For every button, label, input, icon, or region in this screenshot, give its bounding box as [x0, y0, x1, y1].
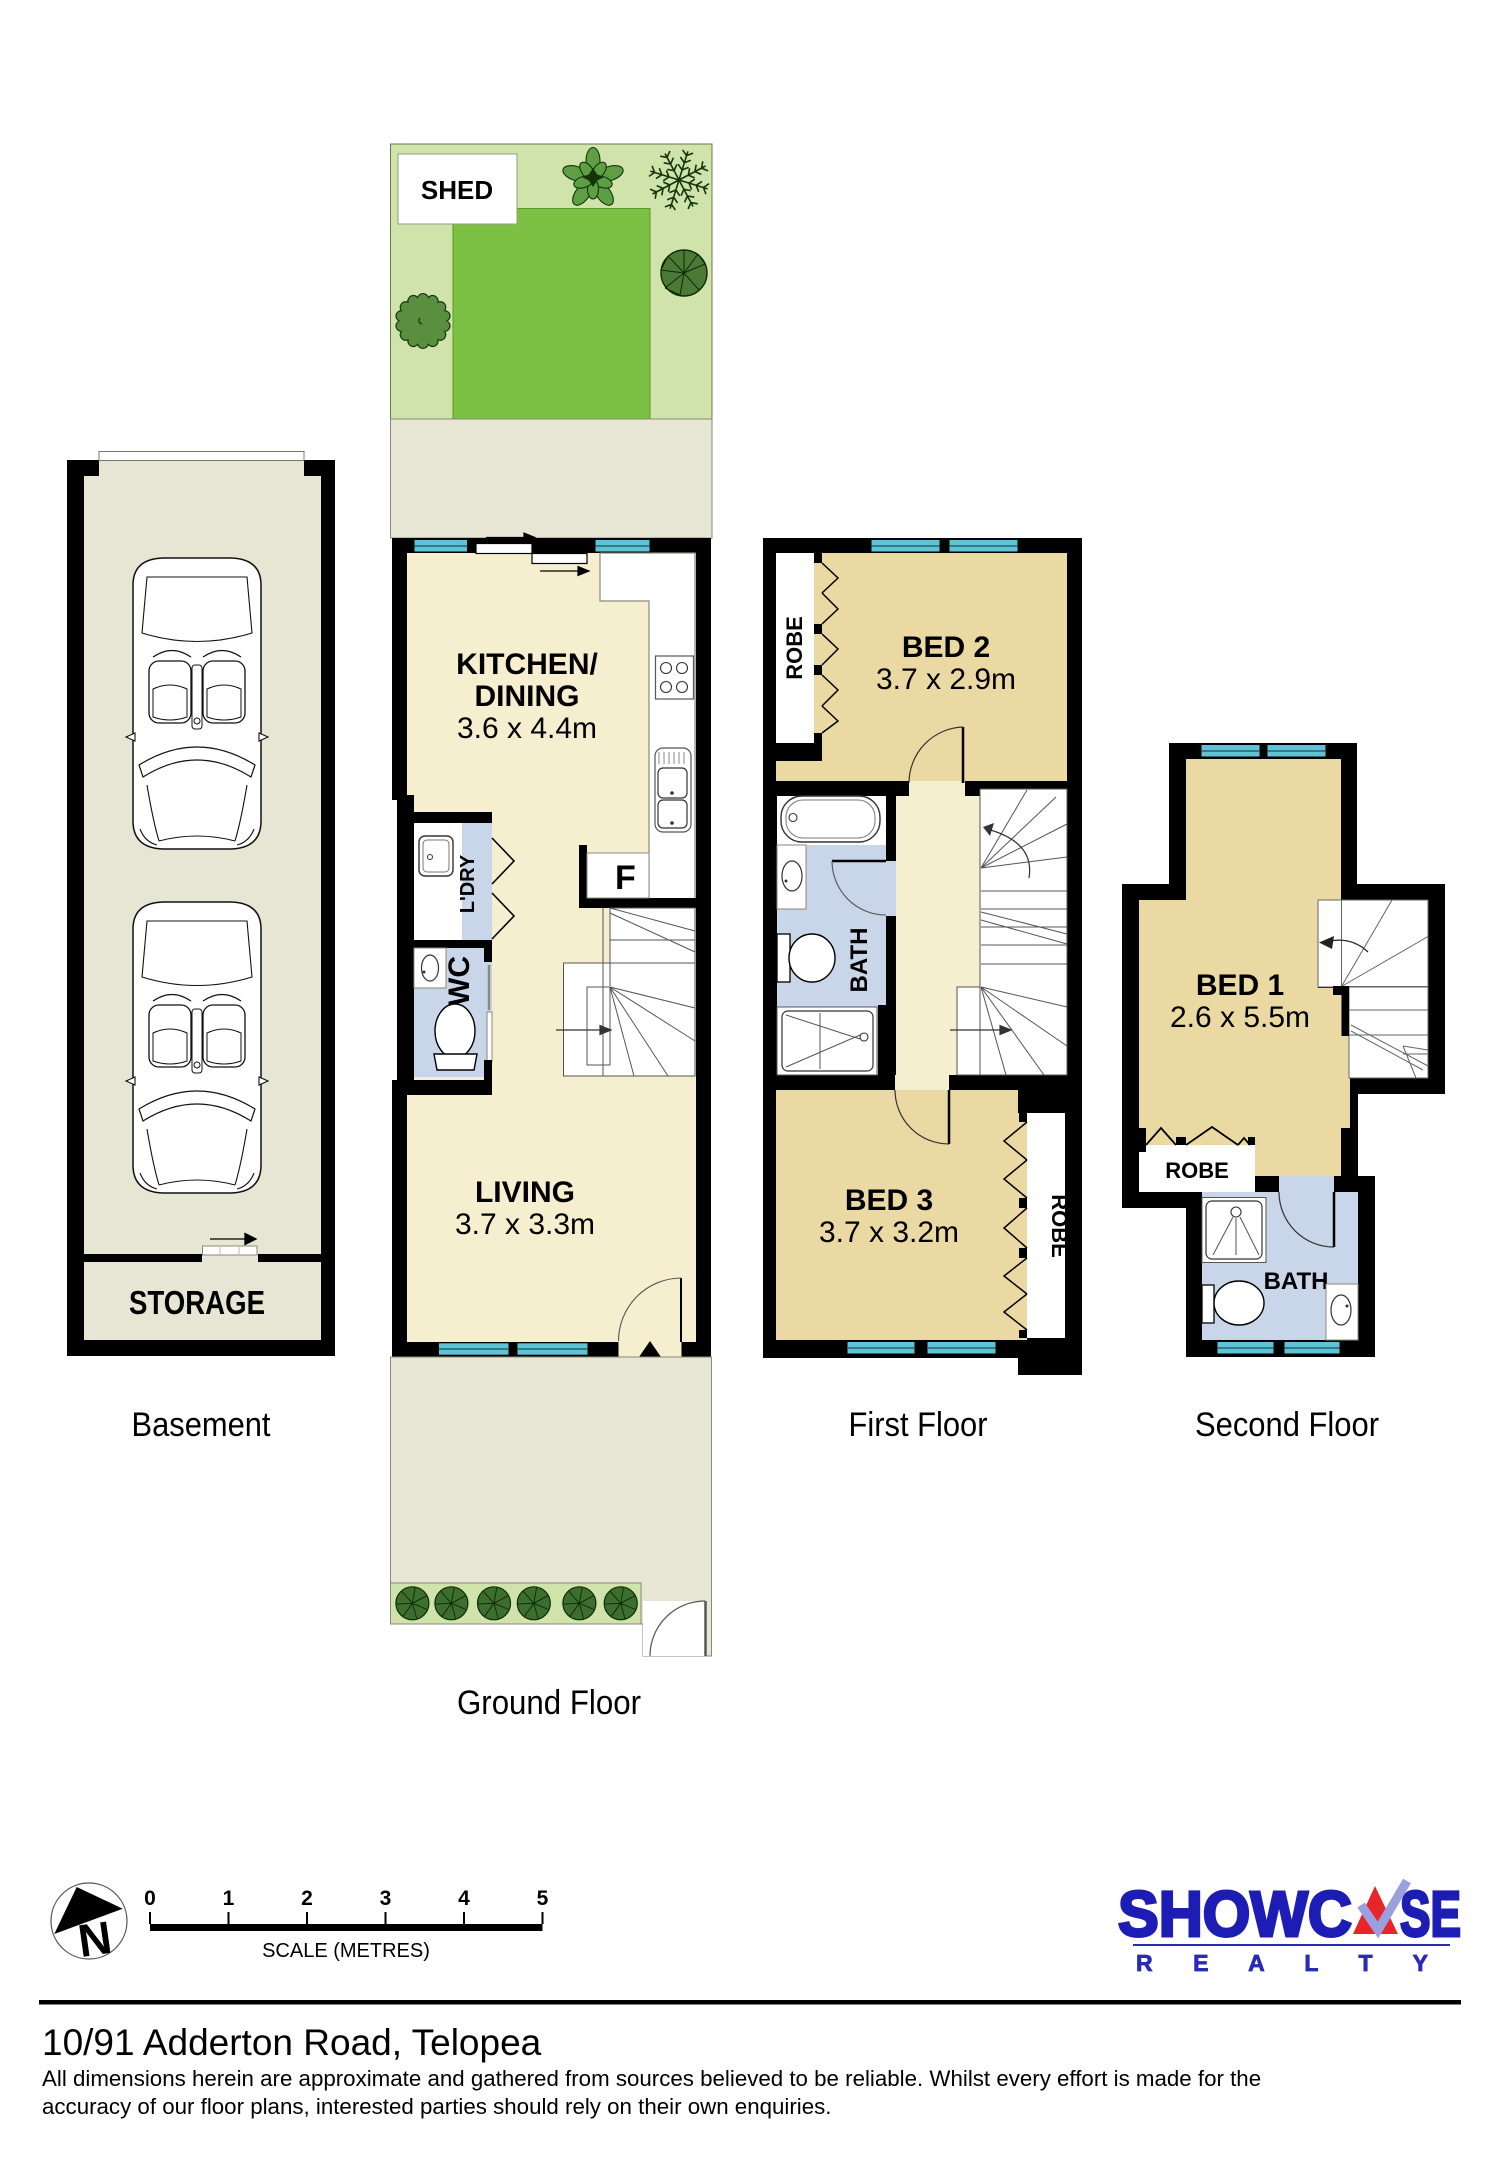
svg-text:10/91 Adderton Road, Telopea: 10/91 Adderton Road, Telopea — [42, 2022, 542, 2063]
svg-text:WC: WC — [443, 956, 476, 1006]
svg-text:2.6 x 5.5m: 2.6 x 5.5m — [1170, 1001, 1310, 1034]
svg-text:3.7 x 2.9m: 3.7 x 2.9m — [876, 663, 1016, 696]
svg-text:LIVING: LIVING — [475, 1176, 575, 1209]
svg-text:SHOWC: SHOWC — [1118, 1878, 1352, 1950]
svg-text:SE: SE — [1400, 1878, 1461, 1950]
svg-text:4: 4 — [458, 1887, 470, 1910]
svg-text:DINING: DINING — [475, 680, 580, 713]
svg-text:ROBE: ROBE — [1165, 1158, 1229, 1183]
svg-text:STORAGE: STORAGE — [129, 1284, 265, 1321]
svg-text:2: 2 — [301, 1887, 313, 1910]
svg-text:BED 1: BED 1 — [1196, 969, 1284, 1002]
svg-text:1: 1 — [223, 1887, 235, 1910]
svg-text:BED 2: BED 2 — [902, 631, 990, 664]
svg-text:L'DRY: L'DRY — [457, 854, 479, 913]
svg-text:F: F — [615, 859, 636, 897]
svg-text:All dimensions herein are appr: All dimensions herein are approximate an… — [42, 2066, 1261, 2091]
svg-text:KITCHEN/: KITCHEN/ — [456, 648, 598, 681]
svg-text:BATH: BATH — [1264, 1268, 1329, 1295]
svg-text:SHED: SHED — [421, 175, 493, 205]
svg-text:BED 3: BED 3 — [845, 1184, 933, 1217]
svg-text:Ground Floor: Ground Floor — [457, 1684, 641, 1722]
svg-text:ROBE: ROBE — [782, 616, 807, 680]
svg-text:R E A L T Y: R E A L T Y — [1136, 1950, 1428, 1976]
svg-text:3.6 x 4.4m: 3.6 x 4.4m — [457, 712, 597, 745]
svg-text:5: 5 — [537, 1887, 549, 1910]
svg-text:3.7 x 3.2m: 3.7 x 3.2m — [819, 1216, 959, 1249]
svg-text:0: 0 — [144, 1887, 156, 1910]
svg-text:3: 3 — [380, 1887, 392, 1910]
svg-text:BATH: BATH — [846, 928, 873, 993]
svg-text:Basement: Basement — [132, 1406, 271, 1444]
svg-text:First Floor: First Floor — [849, 1406, 988, 1444]
svg-text:3.7 x 3.3m: 3.7 x 3.3m — [455, 1208, 595, 1241]
svg-text:accuracy of our floor plans, i: accuracy of our floor plans, interested … — [42, 2094, 831, 2119]
svg-text:SCALE (METRES): SCALE (METRES) — [262, 1940, 430, 1962]
svg-text:Second Floor: Second Floor — [1195, 1406, 1379, 1444]
svg-text:ROBE: ROBE — [1047, 1194, 1072, 1258]
